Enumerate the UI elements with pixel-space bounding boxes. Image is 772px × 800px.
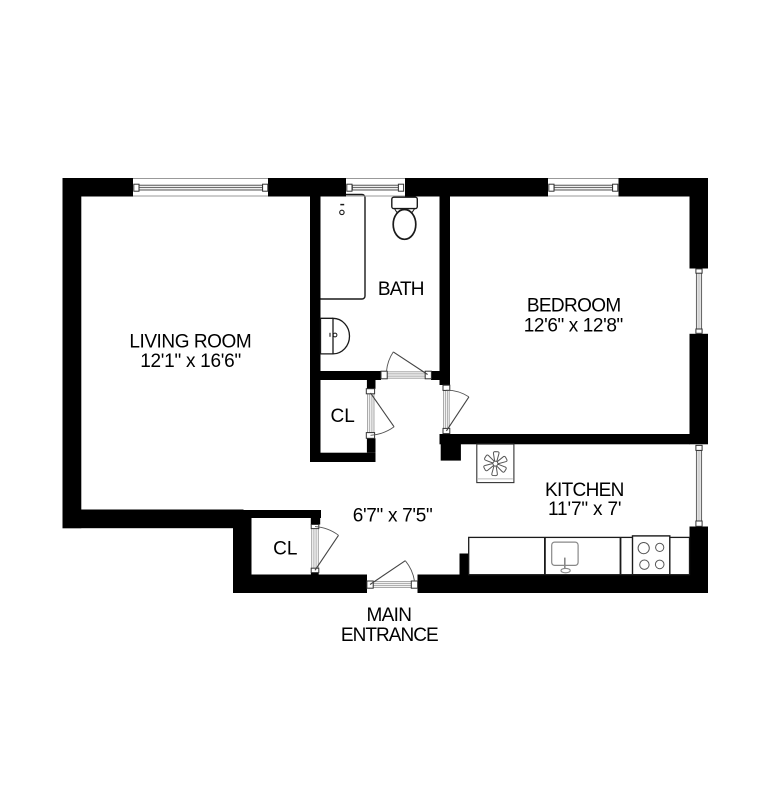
svg-text:12'1" x 16'6": 12'1" x 16'6": [140, 351, 241, 372]
svg-text:BEDROOM: BEDROOM: [527, 296, 621, 317]
svg-text:MAIN: MAIN: [366, 605, 412, 626]
svg-text:ENTRANCE: ENTRANCE: [341, 625, 439, 646]
svg-text:CL: CL: [331, 406, 355, 427]
svg-text:12'6" x 12'8": 12'6" x 12'8": [524, 316, 624, 337]
svg-text:BATH: BATH: [378, 279, 425, 300]
svg-text:6'7" x 7'5": 6'7" x 7'5": [353, 505, 433, 526]
svg-text:LIVING ROOM: LIVING ROOM: [129, 332, 251, 353]
svg-text:CL: CL: [273, 539, 297, 560]
svg-text:11'7" x 7': 11'7" x 7': [548, 499, 622, 520]
